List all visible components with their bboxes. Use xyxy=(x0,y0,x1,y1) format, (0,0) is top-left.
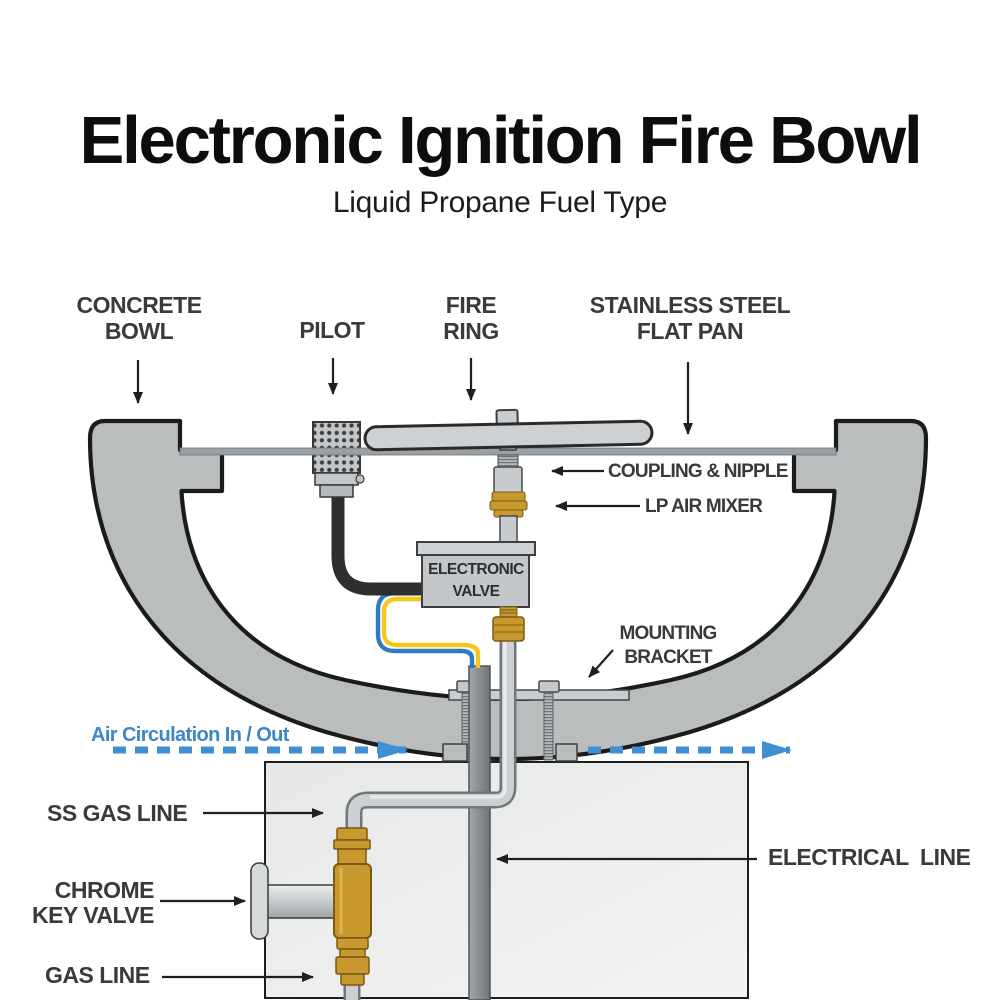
page-subtitle: Liquid Propane Fuel Type xyxy=(0,186,1000,220)
label-air-circulation: Air Circulation In / Out xyxy=(91,724,289,747)
page-title: Electronic Ignition Fire Bowl xyxy=(0,102,1000,179)
label-chrome-key-valve: CHROME KEY VALVE xyxy=(18,878,154,928)
fire-bowl-diagram-page: Electronic Ignition Fire Bowl Liquid Pro… xyxy=(0,0,1000,1000)
fire-ring-shape xyxy=(364,407,652,450)
pilot-base xyxy=(315,473,364,497)
label-pilot: PILOT xyxy=(299,318,364,344)
pilot-tube xyxy=(338,493,424,589)
label-ss-gas-line: SS GAS LINE xyxy=(47,801,187,827)
label-mounting-bracket: MOUNTING BRACKET xyxy=(619,622,716,670)
label-electrical-line: ELECTRICAL LINE xyxy=(768,845,970,871)
label-lp-air-mixer: LP AIR MIXER xyxy=(645,496,762,517)
label-flat-pan: STAINLESS STEEL FLAT PAN xyxy=(590,293,790,345)
label-concrete-bowl: CONCRETE BOWL xyxy=(76,293,201,345)
key-valve-assembly xyxy=(334,828,371,985)
label-coupling-nipple: COUPLING & NIPPLE xyxy=(608,461,788,482)
coupling-and-mixer xyxy=(490,455,527,543)
label-gas-line: GAS LINE xyxy=(45,963,150,989)
label-fire-ring: FIRE RING xyxy=(443,293,499,345)
electrical-conduit xyxy=(469,666,490,1000)
label-electronic-valve: ELECTRONIC VALVE xyxy=(428,559,524,602)
pilot-assembly xyxy=(313,422,360,473)
